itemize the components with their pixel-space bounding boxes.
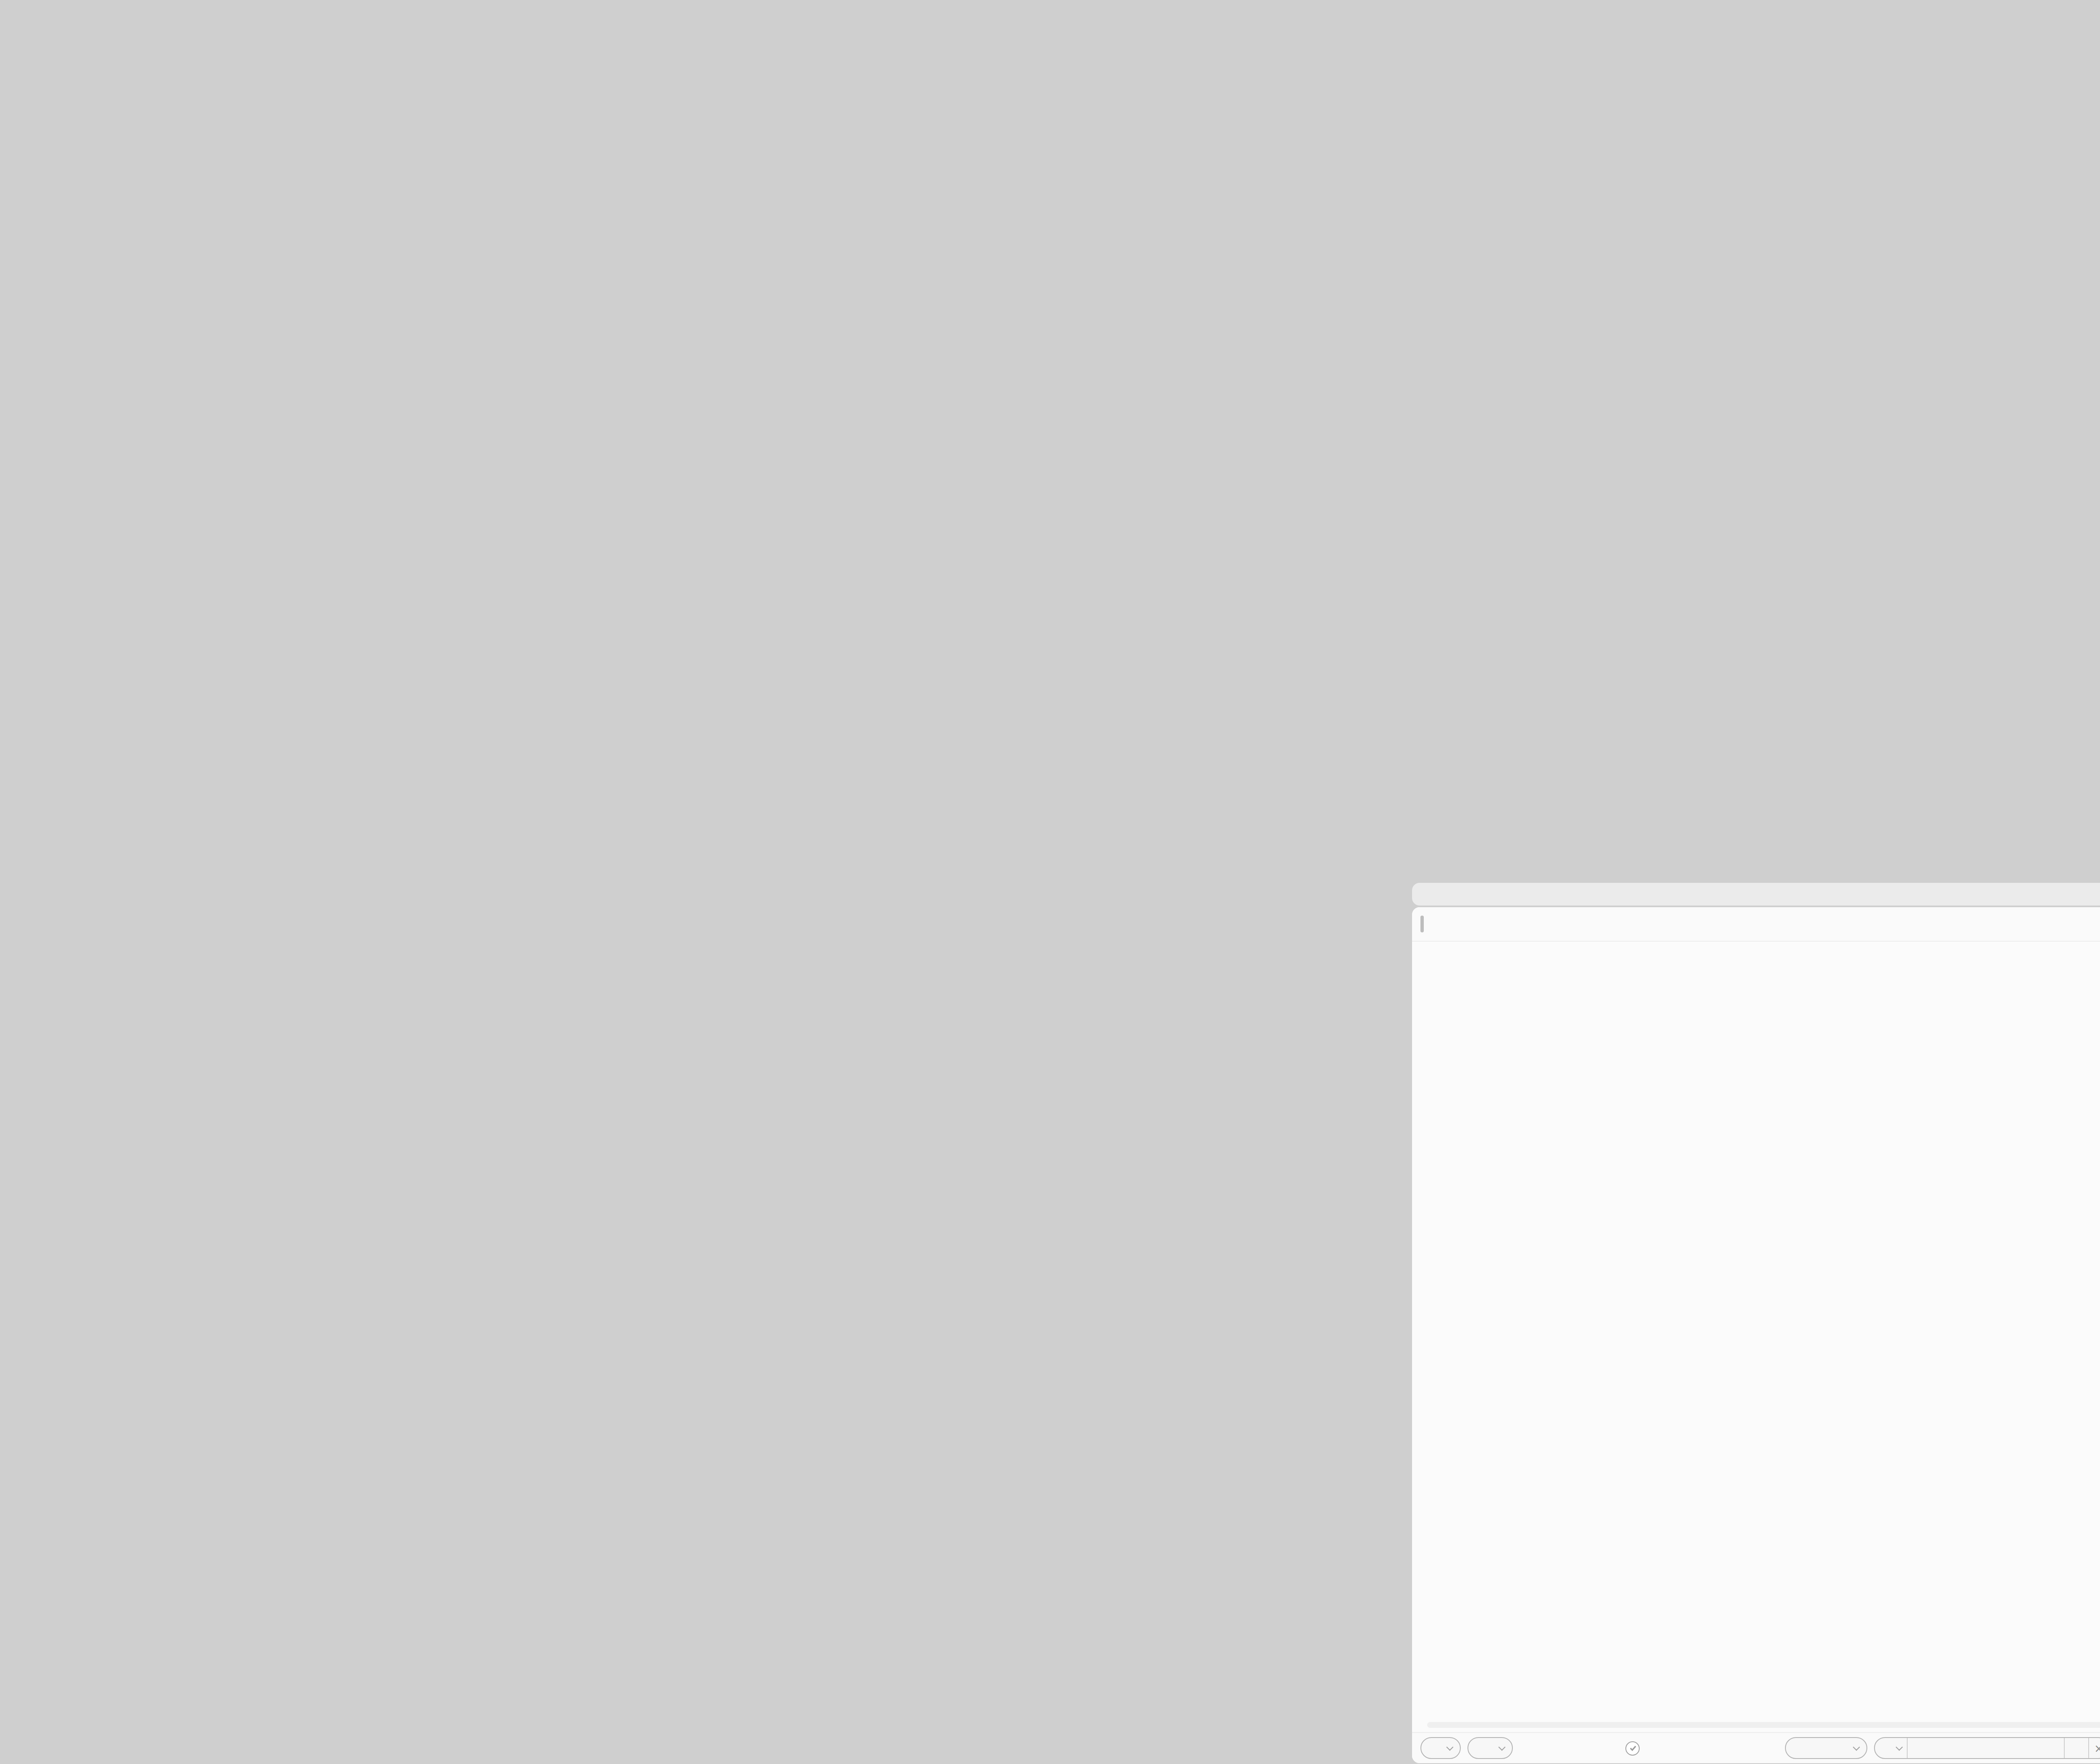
fake-user-shield-icon[interactable]: [2040, 1738, 2065, 1758]
breadcrumb-material[interactable]: [1508, 917, 1528, 931]
viewport-half: × ×: [0, 882, 2100, 1764]
use-nodes-checkbox[interactable]: [1625, 1741, 1646, 1755]
object-icon: [1476, 1741, 1489, 1755]
blender-window-mirror-tiled: × ×: [0, 0, 2100, 1764]
blender-topbar: × ×: [1412, 883, 2100, 906]
node-links-layer: [1412, 965, 2100, 1763]
scrollbar-horizontal[interactable]: [1427, 1722, 2100, 1728]
breadcrumb: [1412, 907, 2100, 942]
object-icon: [1434, 917, 1447, 931]
drag-handle[interactable]: [1420, 916, 1424, 932]
mesh-icon: [1471, 917, 1484, 931]
breadcrumb-mesh[interactable]: [1471, 917, 1491, 931]
hamburger-icon[interactable]: [1419, 887, 1432, 901]
material-icon: [1880, 1741, 1893, 1755]
shader-editor-header: ×: [1412, 1732, 2100, 1763]
copy-icon[interactable]: [2065, 1738, 2089, 1758]
slot-dropdown[interactable]: [1785, 1737, 1867, 1759]
viewport-quadrant: × ×: [1411, 882, 2100, 1764]
shader-editor-area: ×: [1412, 907, 2100, 1763]
unlink-icon[interactable]: ×: [2089, 1738, 2100, 1758]
breadcrumb-object[interactable]: [1434, 917, 1454, 931]
shader-ball-icon: [1429, 1741, 1442, 1755]
material-selector[interactable]: ×: [1874, 1737, 2100, 1759]
editor-type-button[interactable]: [1420, 1737, 1461, 1759]
node-canvas[interactable]: [1412, 965, 2100, 1733]
material-icon: [1508, 917, 1521, 931]
shader-type-dropdown[interactable]: [1467, 1737, 1513, 1759]
